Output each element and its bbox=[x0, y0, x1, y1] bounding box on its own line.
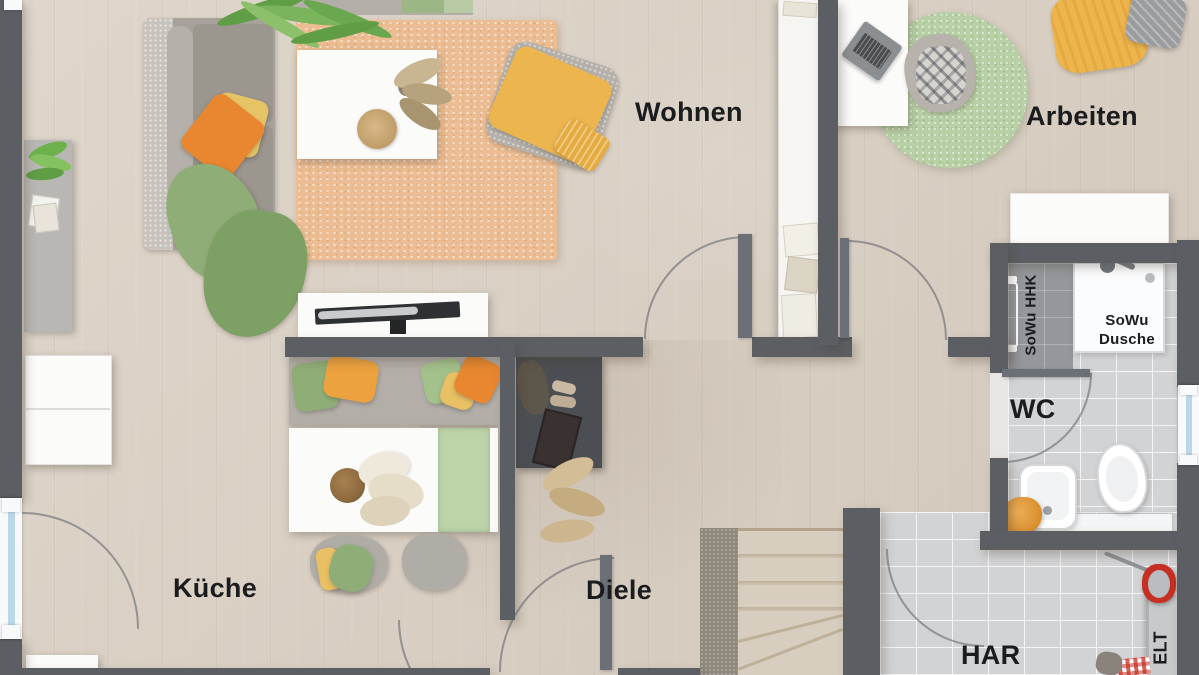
annotation-sowu-hhk: SoWu HHK bbox=[1023, 274, 1040, 355]
books bbox=[784, 256, 821, 294]
room-label-kueche: Küche bbox=[173, 573, 257, 604]
annotation-elt: ELT bbox=[1151, 631, 1172, 665]
mop-head bbox=[1148, 570, 1170, 598]
door-leaf-arbeiten bbox=[840, 238, 849, 338]
wall-east-top bbox=[1177, 240, 1199, 387]
decor-tray bbox=[357, 109, 397, 149]
picture-frames bbox=[32, 203, 59, 234]
wall-east-bottom bbox=[1177, 463, 1199, 675]
room-label-arbeiten: Arbeiten bbox=[1026, 101, 1138, 132]
wall-wohnen-arbeiten bbox=[818, 0, 838, 345]
books bbox=[781, 293, 818, 339]
plaid-blanket bbox=[916, 46, 966, 104]
annotation-sowu-dusche: SoWu Dusche bbox=[1099, 312, 1155, 350]
stair-newel-wall bbox=[700, 528, 738, 675]
window-cap bbox=[4, 0, 22, 10]
fridge bbox=[25, 355, 112, 465]
wall-bath-north bbox=[990, 243, 1199, 263]
wall-bath-west-bottom bbox=[990, 458, 1008, 533]
wall-bottom-right bbox=[618, 668, 700, 675]
shower-drain bbox=[1145, 273, 1155, 283]
door-leaf-wc bbox=[1002, 369, 1090, 377]
wall-corridor-west bbox=[285, 337, 643, 357]
wall-bath-south bbox=[980, 531, 1199, 550]
door-leaf-entrance bbox=[600, 555, 612, 670]
stair-treads bbox=[738, 528, 843, 675]
door-arc-kueche bbox=[398, 620, 510, 675]
door-arc-wohnen bbox=[644, 236, 747, 339]
wall-left-top bbox=[0, 0, 22, 498]
room-label-wc: WC bbox=[1010, 394, 1056, 425]
wall-bath-west-top bbox=[990, 243, 1008, 373]
wall-stairs-east bbox=[843, 508, 880, 675]
table-runner bbox=[438, 428, 490, 532]
folded-blanket bbox=[402, 0, 444, 13]
books bbox=[783, 1, 818, 18]
dining-chair bbox=[402, 533, 467, 591]
room-label-har: HAR bbox=[961, 640, 1020, 671]
room-label-wohnen: Wohnen bbox=[635, 97, 743, 128]
floor-plan: Wohnen Arbeiten Küche Diele WC HAR SoWu … bbox=[0, 0, 1199, 675]
fridge-seam bbox=[25, 408, 110, 410]
wall-kueche-diele bbox=[500, 340, 515, 620]
folded-blanket bbox=[444, 0, 473, 13]
door-leaf-wohnen bbox=[738, 234, 752, 338]
room-label-diele: Diele bbox=[586, 575, 652, 606]
sink-faucet bbox=[1043, 506, 1052, 515]
dresser bbox=[1010, 193, 1169, 244]
books bbox=[783, 223, 821, 258]
wall-left-bottom bbox=[0, 637, 22, 675]
door-arc-terrace bbox=[22, 512, 139, 629]
tv-stand bbox=[390, 320, 406, 334]
door-arc-arbeiten bbox=[847, 240, 947, 340]
orange-pillow bbox=[322, 354, 381, 404]
